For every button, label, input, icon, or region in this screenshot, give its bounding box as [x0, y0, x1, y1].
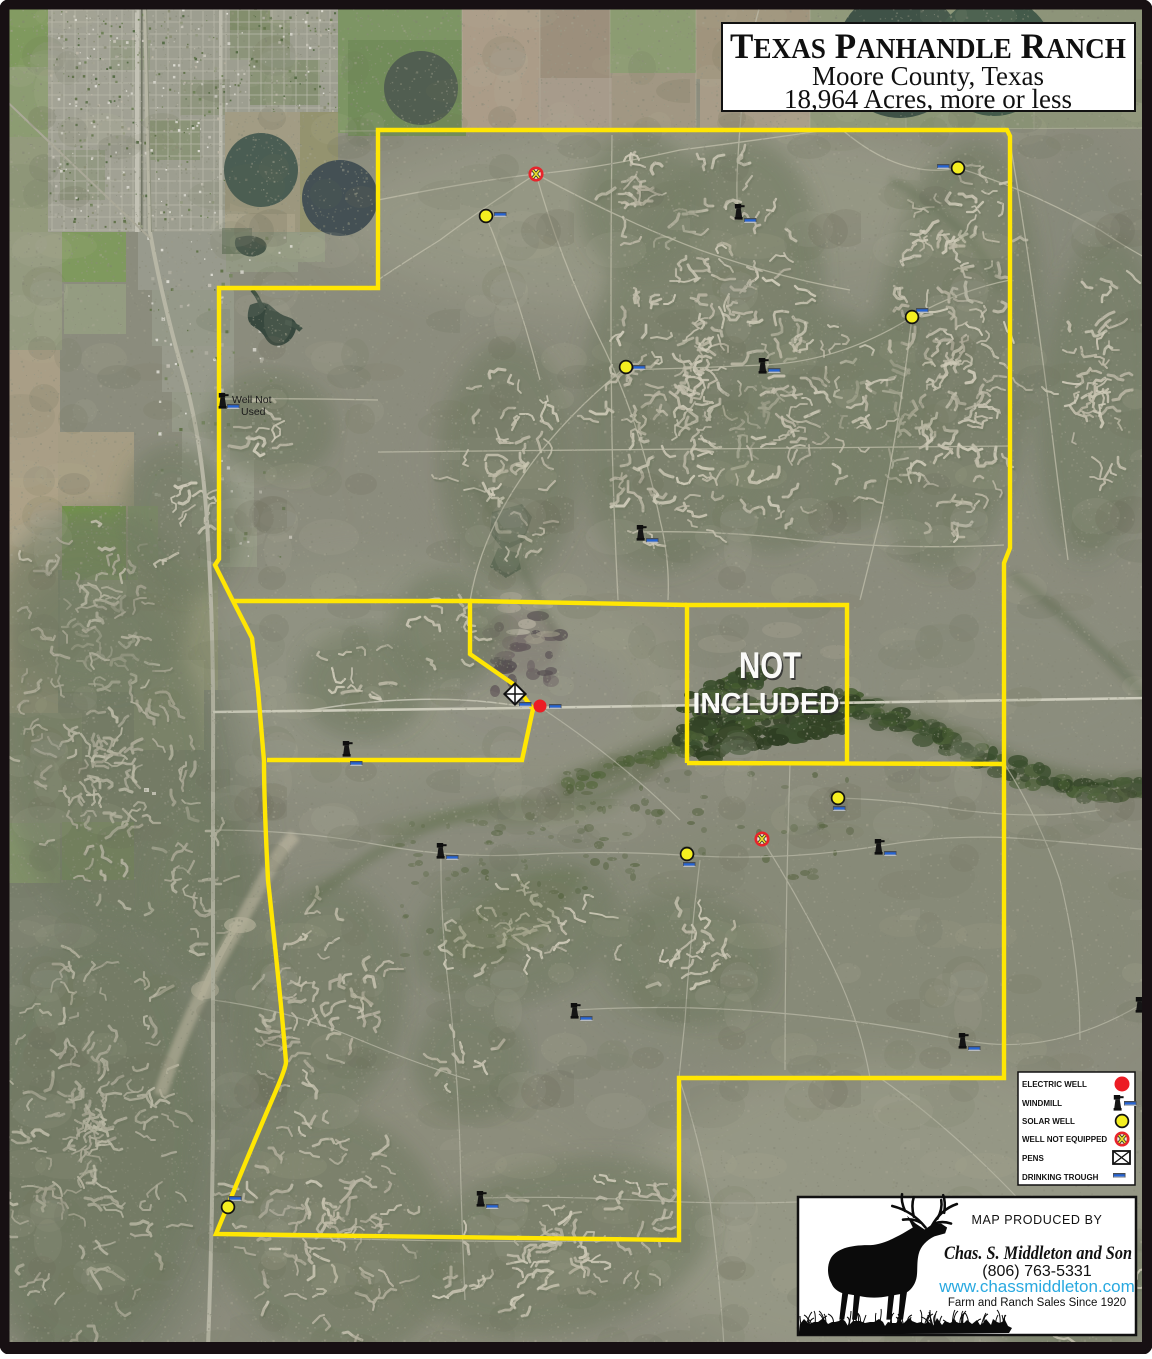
- svg-text:Well Not: Well Not: [232, 394, 272, 406]
- svg-text:Chas. S. Middleton and Son: Chas. S. Middleton and Son: [944, 1243, 1132, 1264]
- svg-text:WELL NOT EQUIPPED: WELL NOT EQUIPPED: [1022, 1135, 1107, 1144]
- svg-text:NOT: NOT: [739, 645, 801, 686]
- svg-text:MAP PRODUCED BY: MAP PRODUCED BY: [971, 1213, 1102, 1227]
- svg-text:ELECTRIC WELL: ELECTRIC WELL: [1022, 1080, 1087, 1089]
- svg-text:INCLUDED: INCLUDED: [693, 688, 840, 720]
- svg-text:18,964 Acres, more or less: 18,964 Acres, more or less: [784, 84, 1072, 114]
- svg-text:DRINKING TROUGH: DRINKING TROUGH: [1022, 1173, 1099, 1182]
- svg-text:Farm and Ranch Sales Since 192: Farm and Ranch Sales Since 1920: [948, 1297, 1126, 1309]
- svg-text:SOLAR WELL: SOLAR WELL: [1022, 1117, 1075, 1126]
- svg-text:www.chassmiddleton.com: www.chassmiddleton.com: [938, 1277, 1135, 1296]
- svg-text:Used: Used: [241, 406, 266, 418]
- svg-text:PENS: PENS: [1022, 1154, 1044, 1163]
- svg-text:WINDMILL: WINDMILL: [1022, 1099, 1062, 1108]
